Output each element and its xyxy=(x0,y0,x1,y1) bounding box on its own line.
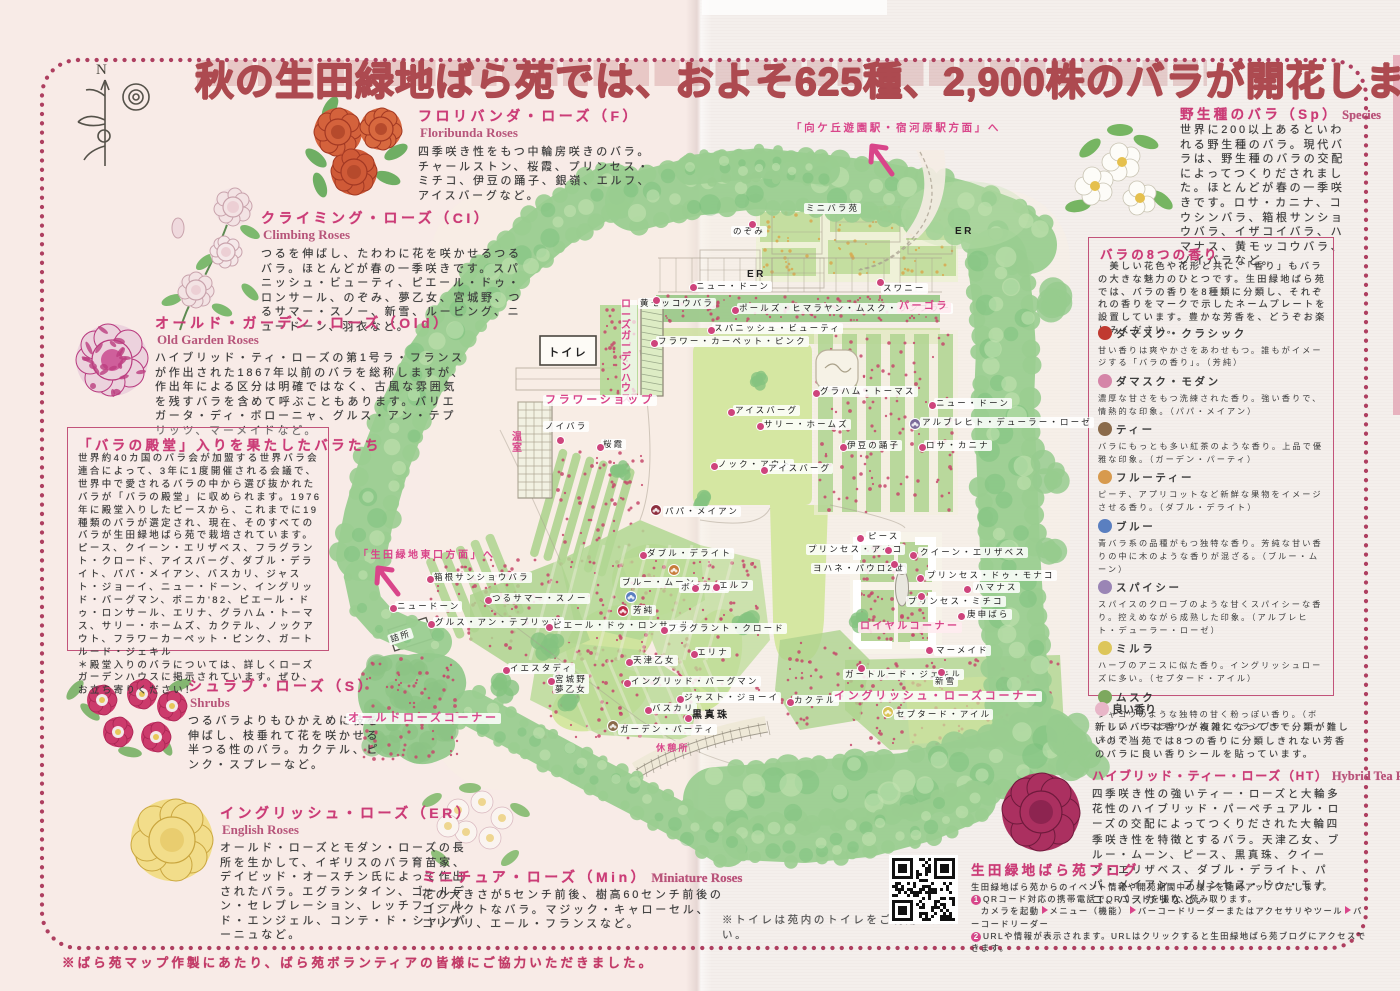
svg-text:N: N xyxy=(96,62,107,78)
